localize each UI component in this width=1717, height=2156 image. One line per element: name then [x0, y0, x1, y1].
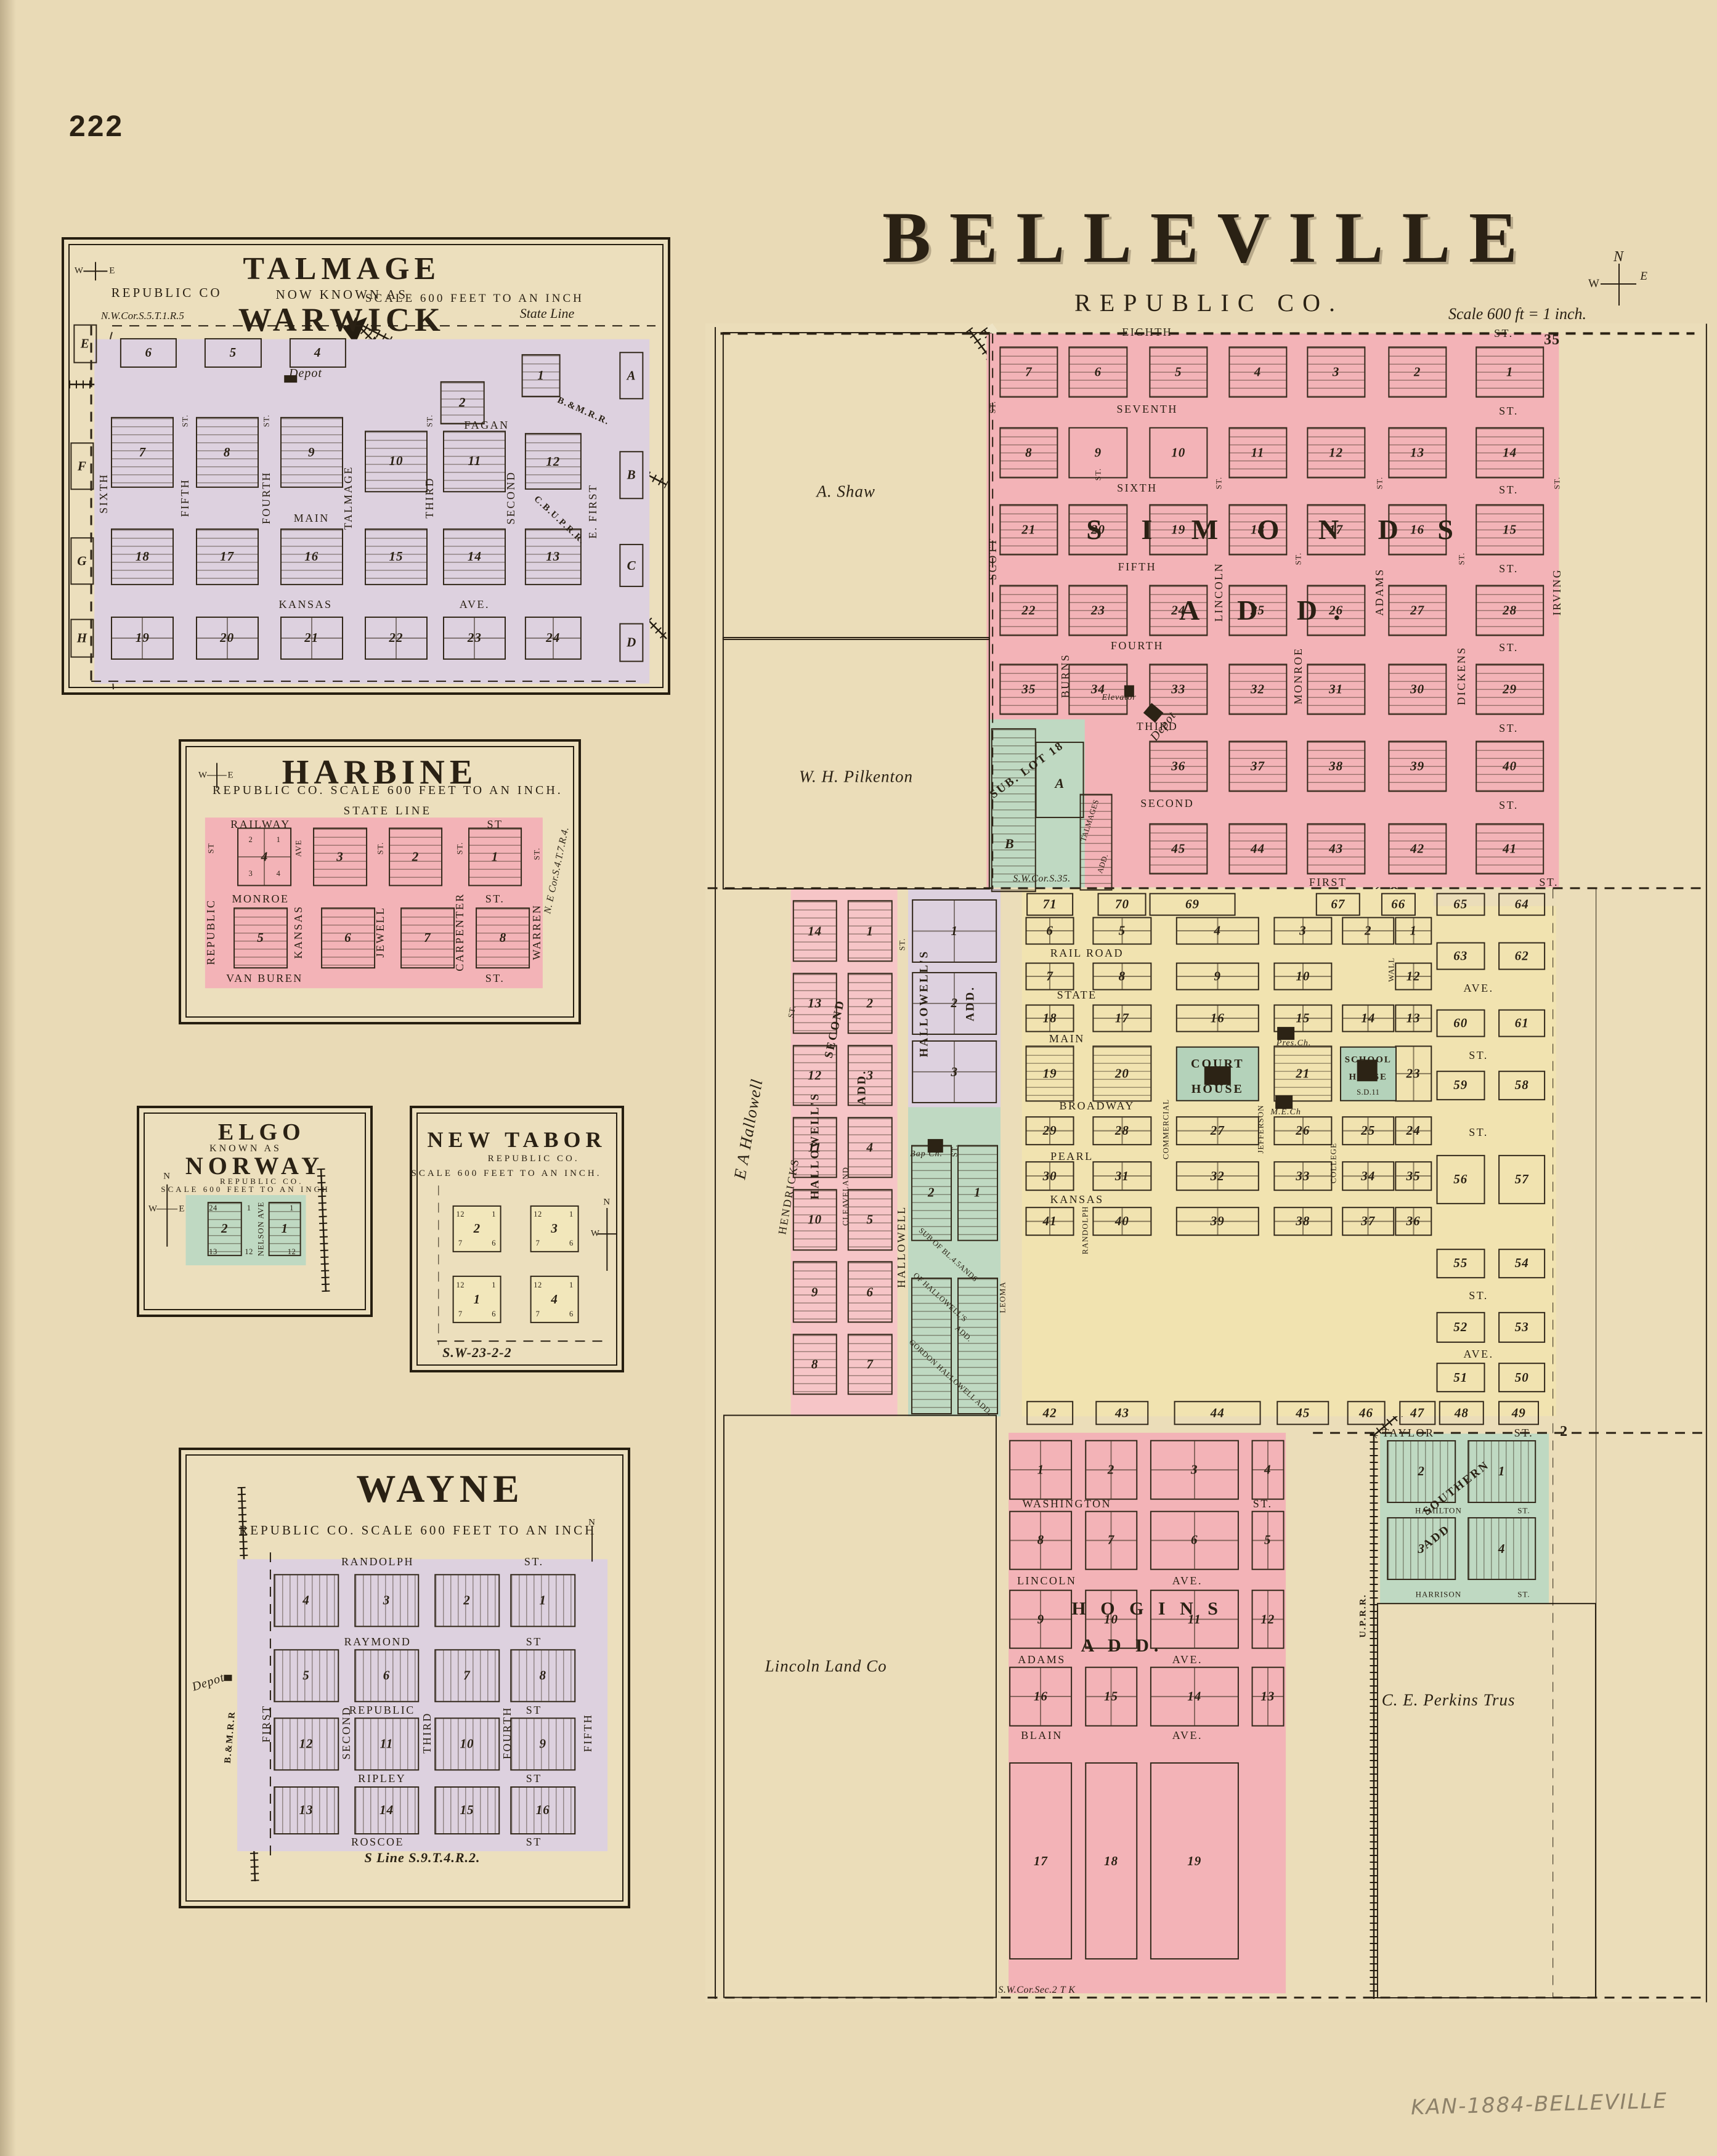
- belleville-map-item: ADAMS: [1018, 1654, 1066, 1665]
- belleville-map-item: 6: [1026, 917, 1074, 945]
- talmage-map-item: 4: [290, 338, 346, 368]
- harbine-map-item: 6: [321, 907, 375, 969]
- new-tabor-map-item: 6: [492, 1310, 496, 1318]
- belleville-map-item: C. E. Perkins Trus: [1382, 1692, 1516, 1708]
- talmage-map-item: H: [71, 618, 94, 657]
- new-tabor-map-item: S.W-23-2-2: [442, 1346, 511, 1360]
- belleville-map-item: 24: [1395, 1116, 1431, 1146]
- belleville-map-item: 41: [1026, 1207, 1074, 1236]
- map-harbine: HARBINE REPUBLIC CO. SCALE 600 FEET TO A…: [179, 739, 581, 1024]
- handwritten-note: KAN-1884-BELLEVILLE: [1411, 2089, 1668, 2120]
- talmage-map-item: SECOND: [505, 471, 516, 524]
- talmage-map-item: 1: [522, 354, 561, 397]
- talmage-title2: WARWICK: [238, 301, 445, 339]
- talmage-corner-note: N.W.Cor.S.5.T.1.R.5: [101, 310, 184, 322]
- compass-east-label: E: [1640, 270, 1647, 283]
- belleville-map-item: 7: [1085, 1510, 1138, 1570]
- belleville-map-item: 18: [1085, 1762, 1138, 1959]
- belleville-map-item: 32: [1228, 664, 1287, 715]
- belleville-map-item: 38: [1307, 741, 1365, 792]
- new-tabor-map-item: 7: [458, 1310, 463, 1318]
- belleville-map-item: 36: [1395, 1207, 1431, 1236]
- new-tabor-map-item: 12: [456, 1210, 465, 1218]
- wayne-map-item: 4: [274, 1574, 339, 1626]
- belleville-map-item: 18: [1026, 1005, 1074, 1032]
- talmage-map-item: 12: [525, 433, 582, 490]
- harbine-map-item: ST: [207, 843, 215, 853]
- belleville-map-item: 21: [1273, 1045, 1332, 1101]
- talmage-map-item: 11: [443, 431, 506, 492]
- belleville-map-item: 29: [1026, 1116, 1074, 1146]
- harbine-map-item: KANSAS: [293, 906, 304, 959]
- new-tabor-map-item: 1: [492, 1281, 496, 1289]
- wayne-map-item: 9: [511, 1718, 576, 1770]
- belleville-map-item: 10: [1273, 963, 1332, 991]
- belleville-map-item: 31: [1093, 1162, 1151, 1191]
- belleville-map-item: 45: [1149, 823, 1208, 874]
- belleville-map-item: 71: [1026, 893, 1073, 916]
- talmage-map-item: 10: [365, 431, 428, 492]
- map-shape: [928, 1139, 943, 1153]
- wayne-layer: 43215678121110913141516RANDOLPHST.RAYMON…: [181, 1450, 628, 1906]
- belleville-map-item: 65: [1436, 893, 1485, 916]
- belleville-map-item: BLAIN: [1021, 1730, 1063, 1741]
- belleville-map-item: 15: [1475, 505, 1544, 556]
- belleville-map-item: 20: [1093, 1045, 1151, 1101]
- belleville-map-item: 2: [1342, 917, 1395, 945]
- belleville-map-item: 70: [1098, 893, 1147, 916]
- belleville-map-item: A: [1055, 777, 1065, 790]
- belleville-map-item: 48: [1439, 1401, 1484, 1425]
- belleville-map-item: 34: [1342, 1162, 1395, 1191]
- belleville-map-item: 1: [848, 901, 892, 962]
- compass-rose: N W E: [1597, 251, 1640, 310]
- new-tabor-map-item: W: [591, 1230, 600, 1239]
- belleville-map-item: M.E.Ch: [1270, 1108, 1301, 1117]
- wayne-title: WAYNE: [356, 1466, 524, 1512]
- wayne-map-item: 13: [274, 1786, 339, 1834]
- belleville-map-item: ST.: [1499, 484, 1519, 495]
- belleville-map-item: 5: [1251, 1510, 1284, 1570]
- harbine-map-item: AVE: [294, 840, 302, 857]
- talmage-map-item: 19: [111, 617, 174, 660]
- new-tabor-county: REPUBLIC CO.: [488, 1154, 580, 1164]
- belleville-map-item: ST.: [951, 1145, 959, 1157]
- belleville-map-item: 58: [1498, 1071, 1545, 1100]
- belleville-map-item: FOURTH: [1111, 640, 1164, 651]
- talmage-map-item: D: [620, 623, 644, 662]
- harbine-map-item: 5: [233, 907, 288, 969]
- wayne-map-item: 3: [354, 1574, 420, 1626]
- wayne-map-item: Depot: [190, 1672, 225, 1694]
- belleville-map-item: 52: [1436, 1311, 1485, 1342]
- talmage-map-item: 18: [111, 528, 174, 585]
- talmage-map-item: FAGAN: [464, 419, 509, 431]
- belleville-map-item: ST.: [787, 1005, 797, 1018]
- belleville-map-item: 39: [1388, 741, 1447, 792]
- belleville-map-item: 29: [1475, 664, 1544, 715]
- belleville-map-item: 50: [1498, 1363, 1545, 1393]
- talmage-map-item: 22: [365, 617, 428, 660]
- belleville-map-item: 16: [1010, 1667, 1073, 1727]
- belleville-map-item: 41: [1475, 823, 1544, 874]
- norway-map-item: 12: [288, 1248, 296, 1256]
- belleville-map-item: 64: [1498, 893, 1545, 916]
- belleville-map-item: 11: [1228, 427, 1287, 478]
- belleville-map-item: Lincoln Land Co: [765, 1658, 887, 1675]
- harbine-map-item: 7: [400, 907, 455, 969]
- talmage-map-item: 9: [280, 417, 343, 487]
- new-tabor-scale: SCALE 600 FEET TO AN INCH.: [411, 1169, 601, 1179]
- belleville-map-item: 55: [1436, 1249, 1485, 1278]
- new-tabor-map-item: 1: [492, 1210, 496, 1218]
- belleville-map-item: ST.: [1499, 405, 1519, 416]
- harbine-map-item: MONROE: [232, 893, 289, 904]
- belleville-map-item: MONROE: [1293, 647, 1304, 705]
- belleville-map-item: 42: [1388, 823, 1447, 874]
- belleville-map-item: 5: [848, 1189, 892, 1250]
- wayne-map-item: B.&M.R.R: [224, 1711, 237, 1764]
- talmage-map-item: C: [620, 544, 644, 587]
- belleville-map-item: 23: [1069, 585, 1127, 636]
- belleville-map-item: ADAMS: [1374, 568, 1385, 616]
- map-shape: [284, 376, 298, 383]
- harbine-map-item: 3: [313, 827, 367, 886]
- talmage-map-item: 7: [111, 417, 174, 487]
- map-shape: [437, 1340, 609, 1342]
- belleville-map-item: 36: [1149, 741, 1208, 792]
- harbine-subtitle: REPUBLIC CO. SCALE 600 FEET TO AN INCH.: [213, 784, 563, 798]
- talmage-county: REPUBLIC CO: [112, 285, 222, 301]
- talmage-map-item: 2: [440, 381, 485, 424]
- belleville-map-item: DICKENS: [1456, 646, 1467, 705]
- new-tabor-map-item: 12: [534, 1210, 542, 1218]
- belleville-map-item: 25: [1342, 1116, 1395, 1146]
- belleville-map-item: 5: [1149, 347, 1208, 398]
- belleville-map-item: 60: [1436, 1010, 1485, 1037]
- belleville-map-item: 7: [999, 347, 1058, 398]
- belleville-map-item: A D D.: [1179, 596, 1357, 625]
- map-shape: [1204, 1066, 1230, 1085]
- talmage-map-item: 24: [525, 617, 582, 660]
- belleville-map-item: 7: [848, 1334, 892, 1395]
- belleville-map-item: 14: [1150, 1667, 1239, 1727]
- harbine-map-item: ST.: [533, 848, 541, 860]
- belleville-map-item: 13: [1395, 1005, 1431, 1032]
- belleville-map-item: 31: [1307, 664, 1365, 715]
- belleville-map-item: COLLEGE: [1329, 1142, 1337, 1183]
- new-tabor-map-item: N: [603, 1198, 611, 1207]
- map-shape: [224, 1675, 232, 1681]
- belleville-map-item: ST.: [1253, 1498, 1273, 1509]
- map-shape: [722, 637, 989, 890]
- wayne-map-item: ST: [526, 1836, 542, 1847]
- belleville-map-item: ST.: [1494, 328, 1514, 339]
- belleville-map-item: H O G I N S: [1071, 1600, 1223, 1618]
- harbine-map-item: VAN BUREN: [226, 973, 303, 984]
- belleville-layer: 7654321891011121314212019181716152223242…: [705, 323, 1710, 2002]
- belleville-map-item: ST.: [1375, 477, 1383, 489]
- talmage-scale: SCALE 600 FEET TO AN INCH: [365, 292, 584, 306]
- harbine-state-line: STATE LINE: [344, 804, 432, 818]
- belleville-map-item: ST.: [1469, 1290, 1488, 1301]
- belleville-map-item: 13: [1251, 1667, 1284, 1727]
- new-tabor-map-item: 1: [569, 1281, 574, 1289]
- talmage-map-item: 5: [205, 338, 261, 368]
- harbine-map-item: 1: [277, 836, 281, 844]
- belleville-map-item: 40: [1475, 741, 1544, 792]
- belleville-map-item: 6: [1069, 347, 1127, 398]
- belleville-map-item: 12: [1307, 427, 1365, 478]
- talmage-map-item: ST.: [181, 415, 189, 427]
- talmage-map-item: A: [620, 352, 644, 400]
- talmage-map-item: THIRD: [424, 477, 435, 519]
- belleville-map-item: 59: [1436, 1071, 1485, 1100]
- belleville-map-item: 51: [1436, 1363, 1485, 1393]
- map-wayne: WAYNE REPUBLIC CO. SCALE 600 FEET TO AN …: [179, 1448, 630, 1908]
- belleville-map-item: STATE: [1057, 989, 1097, 1000]
- wayne-map-item: FOURTH: [501, 1706, 513, 1759]
- belleville-map-item: FIRST: [1309, 877, 1347, 888]
- belleville-map-item: 1: [957, 1145, 998, 1241]
- belleville-map-item: 33: [1149, 664, 1208, 715]
- belleville-map-item: 19: [1026, 1045, 1074, 1101]
- belleville-map-item: 44: [1228, 823, 1287, 874]
- new-tabor-map-item: 6: [492, 1239, 496, 1247]
- belleville-map-item: 47: [1399, 1401, 1435, 1425]
- harbine-map-item: JEWELL: [375, 907, 386, 958]
- belleville-map-item: 62: [1498, 942, 1545, 970]
- talmage-map-item: 17: [196, 528, 259, 585]
- belleville-map-item: 46: [1347, 1401, 1386, 1425]
- wayne-map-item: THIRD: [421, 1712, 432, 1754]
- harbine-map-item: WARREN: [531, 904, 542, 960]
- belleville-map-item: ST.: [1517, 1506, 1530, 1514]
- talmage-map-item: FIFTH: [179, 479, 190, 517]
- norway-title: ELGO: [218, 1119, 306, 1146]
- belleville-map-item: 27: [1176, 1116, 1259, 1146]
- belleville-map-item: 56: [1436, 1155, 1485, 1204]
- harbine-map-item: 4: [277, 870, 281, 878]
- new-tabor-title: NEW TABOR: [427, 1127, 606, 1153]
- harbine-map-item: REPUBLIC: [205, 899, 216, 965]
- harbine-map-item: RAILWAY: [230, 819, 291, 830]
- map-shape: [715, 326, 716, 1998]
- talmage-map-item: 20: [196, 617, 259, 660]
- belleville-map-item: 43: [1307, 823, 1365, 874]
- new-tabor-map-item: 7: [536, 1310, 540, 1318]
- belleville-map-item: 30: [1026, 1162, 1074, 1191]
- belleville-map-item: 26: [1273, 1116, 1332, 1146]
- talmage-map-item: E. FIRST: [587, 484, 598, 538]
- belleville-map-item: Pres.Ch.: [1277, 1039, 1311, 1048]
- map-talmage-warwick: TALMAGE NOW KNOWN AS WARWICK REPUBLIC CO…: [62, 237, 670, 695]
- new-tabor-map-item: 6: [569, 1239, 574, 1247]
- belleville-map-item: S.W.Cor.Sec.2 T K: [998, 1985, 1075, 1995]
- wayne-map-item: 8: [511, 1650, 576, 1702]
- talmage-map-item: B: [620, 451, 644, 499]
- belleville-map-item: 14: [1475, 427, 1544, 478]
- talmage-map-item: TALMAGE: [343, 466, 354, 530]
- belleville-map-item: RAIL ROAD: [1050, 947, 1124, 958]
- wayne-map-item: REPUBLIC: [349, 1704, 415, 1716]
- belleville-map-item: 28: [1093, 1116, 1151, 1146]
- belleville-map-item: 2: [848, 973, 892, 1034]
- map-belleville: BELLEVILLE REPUBLIC CO. Scale 600 ft = 1…: [705, 185, 1713, 2002]
- belleville-map-item: PEARL: [1050, 1151, 1094, 1162]
- talmage-map-item: SIXTH: [98, 473, 109, 514]
- belleville-map-item: MAIN: [1049, 1033, 1085, 1044]
- norway-map-item: 1: [290, 1204, 294, 1212]
- belleville-map-item: 27: [1388, 585, 1447, 636]
- harbine-map-item: E: [228, 771, 234, 780]
- map-shape: [607, 1208, 607, 1271]
- wayne-map-item: 2: [434, 1574, 500, 1626]
- belleville-map-item: 2: [1388, 347, 1447, 398]
- map-new-tabor: NEW TABOR REPUBLIC CO. SCALE 600 FEET TO…: [410, 1106, 624, 1372]
- page-number: 222: [69, 110, 124, 144]
- harbine-map-item: ST: [487, 819, 503, 830]
- belleville-map-item: RANDOLPH: [1081, 1206, 1089, 1254]
- belleville-map-item: 34: [1069, 664, 1127, 715]
- belleville-map-item: ST.: [1553, 477, 1561, 489]
- map-shape: [1275, 1095, 1293, 1109]
- norway-map-item: 24: [209, 1204, 217, 1212]
- belleville-map-item: 9: [1010, 1589, 1073, 1649]
- norway-map-item: 1: [269, 1202, 301, 1256]
- belleville-map-item: 3: [848, 1045, 892, 1106]
- talmage-title: TALMAGE: [243, 251, 440, 287]
- belleville-map-item: 14: [792, 901, 837, 962]
- belleville-map-item: AVE.: [1464, 983, 1494, 994]
- belleville-map-item: ST.: [1517, 1590, 1530, 1598]
- new-tabor-map-item: 1: [569, 1210, 574, 1218]
- wayne-map-item: ROSCOE: [351, 1836, 404, 1847]
- talmage-map-item: 6: [120, 338, 177, 368]
- belleville-map-item: 4: [848, 1117, 892, 1178]
- talmage-state-line: State Line: [520, 306, 575, 322]
- belleville-map-item: 8: [999, 427, 1058, 478]
- belleville-map-item: 9: [1176, 963, 1259, 991]
- talmage-map-item: E: [109, 267, 115, 276]
- norway-map-item: 1: [247, 1204, 251, 1212]
- belleville-map-item: 14: [1342, 1005, 1395, 1032]
- belleville-map-item: 12: [1395, 963, 1431, 991]
- talmage-map-item: G: [71, 537, 94, 585]
- norway-map-item: E: [179, 1205, 185, 1214]
- belleville-map-item: 42: [1026, 1401, 1073, 1425]
- belleville-map-item: 35: [1395, 1162, 1431, 1191]
- belleville-scale: Scale 600 ft = 1 inch.: [1448, 305, 1586, 323]
- norway-map-item: NELSON AVE: [256, 1202, 264, 1257]
- talmage-map-item: 15: [365, 528, 428, 585]
- map-shape: [991, 728, 1036, 892]
- norway-scale: SCALE 600 FEET TO AN INCH: [161, 1185, 330, 1194]
- compass-west-label: W: [1588, 277, 1599, 291]
- belleville-map-item: 35: [1544, 333, 1560, 347]
- talmage-map-item: MAIN: [294, 513, 330, 524]
- harbine-map-item: 1: [468, 827, 522, 886]
- wayne-map-item: 7: [434, 1650, 500, 1702]
- belleville-map-item: SEVENTH: [1116, 403, 1178, 415]
- wayne-subtitle: REPUBLIC CO. SCALE 600 FEET TO AN INCH: [239, 1523, 596, 1538]
- map-shape: [1313, 1432, 1705, 1434]
- belleville-map-item: ST.: [1294, 552, 1302, 564]
- wayne-map-item: ST: [526, 1773, 542, 1784]
- belleville-map-item: 21: [999, 505, 1058, 556]
- belleville-map-item: 30: [1388, 664, 1447, 715]
- harbine-map-item: 3: [249, 870, 253, 878]
- belleville-map-item: S.D.11: [1357, 1088, 1379, 1096]
- belleville-map-item: 63: [1436, 942, 1485, 970]
- new-tabor-map-item: 12: [456, 1281, 465, 1289]
- norway-map-item: N: [163, 1172, 171, 1181]
- belleville-map-item: 17: [1093, 1005, 1151, 1032]
- belleville-map-item: COMMERCIAL: [1161, 1099, 1169, 1159]
- wayne-map-item: 11: [354, 1718, 420, 1770]
- belleville-map-item: ST.: [1094, 468, 1102, 480]
- belleville-map-item: TAYLOR: [1382, 1427, 1435, 1438]
- talmage-map-item: E: [74, 325, 97, 363]
- belleville-map-item: 35: [999, 664, 1058, 715]
- belleville-map-item: LINCOLN: [1017, 1575, 1077, 1586]
- belleville-map-item: 23: [1395, 1045, 1431, 1101]
- norway-map-item: 12: [245, 1248, 253, 1256]
- harbine-map-item: ST.: [485, 893, 505, 904]
- belleville-map-item: 15: [1085, 1667, 1138, 1727]
- harbine-map-item: ST.: [376, 842, 384, 854]
- belleville-map-item: 4: [1467, 1517, 1536, 1580]
- belleville-map-item: 17: [1010, 1762, 1073, 1959]
- belleville-map-item: KANSAS: [1050, 1194, 1104, 1205]
- belleville-map-item: HALLOWELL'S: [919, 949, 930, 1057]
- belleville-map-item: E A Hallowell: [731, 1077, 765, 1180]
- wayne-map-item: S Line S.9.T.4.R.2.: [364, 1851, 480, 1865]
- harbine-map-item: 2: [249, 836, 253, 844]
- wayne-map-item: RANDOLPH: [341, 1556, 414, 1567]
- belleville-map-item: SIXTH: [1117, 482, 1158, 493]
- harbine-map-item: W: [198, 771, 208, 780]
- belleville-map-item: 57: [1498, 1155, 1545, 1204]
- harbine-map-item: ST.: [485, 973, 505, 984]
- map-shape: [1377, 1603, 1596, 1998]
- belleville-map-item: BROADWAY: [1060, 1100, 1135, 1111]
- belleville-map-item: 9: [792, 1262, 837, 1323]
- wayne-map-item: 6: [354, 1650, 420, 1702]
- belleville-map-item: 2: [1560, 1424, 1568, 1439]
- belleville-map-item: 1: [1475, 347, 1544, 398]
- belleville-map-item: CLEAVELAND: [841, 1167, 849, 1226]
- belleville-map-item: 32: [1176, 1162, 1259, 1191]
- belleville-map-item: ST.: [1469, 1127, 1488, 1138]
- belleville-map-item: HALLOWELL'S: [809, 1092, 821, 1200]
- belleville-map-item: ST.: [1214, 477, 1222, 489]
- talmage-map-item: 16: [280, 528, 343, 585]
- talmage-map-item: 14: [443, 528, 506, 585]
- talmage-map-item: ST.: [425, 415, 433, 427]
- belleville-map-item: S I M O N D S: [1086, 516, 1469, 544]
- wayne-map-item: RAYMOND: [344, 1636, 412, 1647]
- belleville-map-item: ST.: [989, 401, 997, 413]
- wayne-map-item: SECOND: [341, 1706, 352, 1759]
- wayne-map-item: 14: [354, 1786, 420, 1834]
- belleville-map-item: ST.: [1514, 1427, 1534, 1438]
- wayne-map-item: 12: [274, 1718, 339, 1770]
- new-tabor-map-item: 7: [458, 1239, 463, 1247]
- belleville-plat: 7654321891011121314212019181716152223242…: [705, 323, 1710, 2002]
- belleville-map-item: AVE.: [1464, 1348, 1494, 1360]
- belleville-map-item: ST.: [898, 938, 906, 950]
